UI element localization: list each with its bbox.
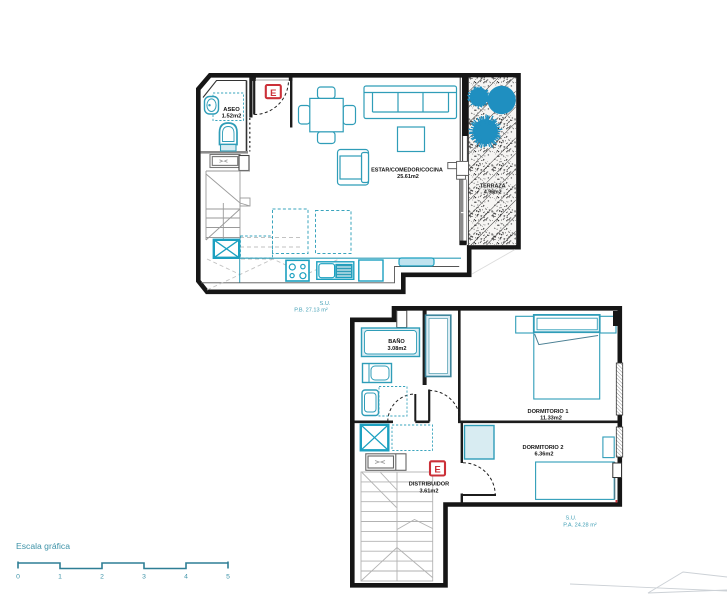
svg-text:3: 3 — [142, 574, 146, 581]
svg-text:4.96m2: 4.96m2 — [484, 189, 502, 195]
svg-text:11.33m2: 11.33m2 — [540, 416, 562, 422]
svg-text:S.U.: S.U. — [566, 515, 577, 521]
svg-text:P.B. 27.13 m²: P.B. 27.13 m² — [294, 308, 328, 314]
svg-text:DISTRIBUIDOR: DISTRIBUIDOR — [409, 482, 449, 488]
svg-text:BAÑO: BAÑO — [388, 338, 405, 345]
svg-text:25.61m2: 25.61m2 — [397, 174, 419, 180]
svg-text:3.61m2: 3.61m2 — [420, 489, 439, 495]
svg-text:Escala gráfica: Escala gráfica — [16, 541, 70, 551]
svg-text:1: 1 — [58, 574, 62, 581]
svg-text:S.U.: S.U. — [320, 301, 331, 307]
svg-text:2: 2 — [100, 574, 104, 581]
svg-text:6.36m2: 6.36m2 — [535, 452, 554, 458]
svg-text:E: E — [270, 88, 276, 99]
svg-text:1.52m2: 1.52m2 — [222, 114, 242, 120]
svg-text:E: E — [434, 465, 440, 476]
svg-text:5: 5 — [226, 574, 230, 581]
svg-text:4: 4 — [184, 574, 188, 581]
svg-text:DORMITORIO 1: DORMITORIO 1 — [528, 409, 569, 415]
svg-text:ASEO: ASEO — [223, 107, 240, 113]
svg-text:ESTAR/COMEDOR/COCINA: ESTAR/COMEDOR/COCINA — [371, 168, 443, 174]
svg-text:DORMITORIO 2: DORMITORIO 2 — [523, 445, 564, 451]
svg-text:0: 0 — [16, 574, 20, 581]
svg-text:P.A. 24.28 m²: P.A. 24.28 m² — [563, 522, 597, 528]
svg-text:3.08m2: 3.08m2 — [388, 346, 407, 352]
